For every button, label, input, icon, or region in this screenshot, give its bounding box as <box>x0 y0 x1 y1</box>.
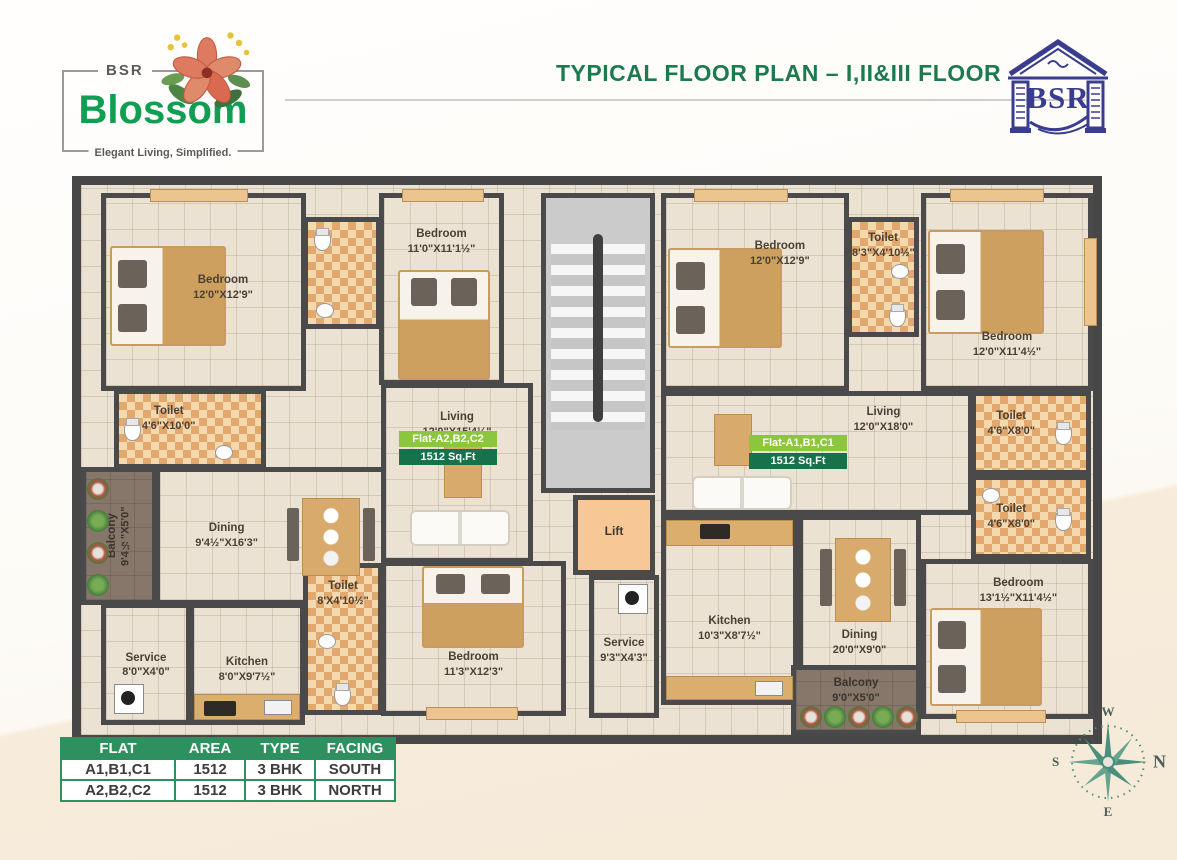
room-dims: 11'0"X11'1½" <box>384 242 499 256</box>
room-name: Dining <box>169 521 284 536</box>
room-kitchen-right: Kitchen10'3"X8'7½" <box>661 515 798 705</box>
washing-machine-icon <box>114 684 144 714</box>
dining-table-icon <box>302 498 360 576</box>
window <box>426 707 518 720</box>
teapoy-icon <box>714 414 752 466</box>
toilet-icon <box>334 683 351 706</box>
room-name: Lift <box>578 524 650 540</box>
flat-name: Flat-A2,B2,C2 <box>399 431 497 447</box>
divider-line <box>285 99 1085 101</box>
flat-area: 1512 Sq.Ft <box>749 453 847 469</box>
room-service-center: Service9'3"X4'3" <box>589 575 659 718</box>
room-name: Kitchen <box>194 655 300 670</box>
room-dims: 12'0"X12'9" <box>145 288 301 302</box>
window <box>150 189 248 202</box>
room-name: Service <box>106 651 186 666</box>
room-name: Bedroom <box>386 650 561 665</box>
toilet-icon <box>889 304 906 327</box>
plant-icon <box>87 542 109 564</box>
stair-rail <box>593 234 603 422</box>
lift: Lift <box>573 495 655 575</box>
toilet-icon <box>1055 422 1072 445</box>
plant-icon <box>87 478 109 500</box>
flower-icon <box>152 28 262 124</box>
room-dims: 9'3"X4'3" <box>594 651 654 665</box>
room-balcony-left: Balcony 9'4½"X5'0" <box>81 467 157 605</box>
bed-icon <box>398 270 490 380</box>
sink-icon <box>316 303 334 318</box>
room-dims: 10'3"X8'7½" <box>666 629 793 643</box>
room-name: Living <box>799 405 968 420</box>
bsr-emblem-text: BSR <box>1000 80 1116 116</box>
room-dims: 9'0"X5'0" <box>796 691 916 705</box>
plant-icon <box>87 510 109 532</box>
room-dims: 12'0"X11'4½" <box>926 345 1088 359</box>
header-type: TYPE <box>245 738 315 759</box>
table-header-row: FLAT AREA TYPE FACING <box>61 738 395 759</box>
room-name: Toilet <box>852 231 914 246</box>
room-name: Living <box>386 410 528 425</box>
cell-area: 1512 <box>175 780 245 801</box>
plant-icon <box>87 574 109 596</box>
window <box>402 189 484 202</box>
room-dims: 4'6"X10'0" <box>119 419 218 433</box>
room-name: Bedroom <box>955 576 1081 591</box>
window <box>950 189 1044 202</box>
cell-area: 1512 <box>175 759 245 780</box>
header-area: AREA <box>175 738 245 759</box>
flat-area: 1512 Sq.Ft <box>399 449 497 465</box>
table-row: A2,B2,C2 1512 3 BHK NORTH <box>61 780 395 801</box>
room-toilet-right-2: Toilet4'6"X8'0" <box>971 475 1091 559</box>
room-name: Toilet <box>976 409 1046 424</box>
plant-icon <box>896 706 918 728</box>
sofa-icon <box>410 510 510 546</box>
room-name: Service <box>594 636 654 651</box>
cell-flat: A1,B1,C1 <box>61 759 175 780</box>
room-bedroom-left-bottom: Bedroom11'3"X12'3" <box>381 561 566 716</box>
room-bedroom-left-mid: Bedroom11'0"X11'1½" <box>379 193 504 385</box>
plant-icon <box>848 706 870 728</box>
room-dims: 4'6"X8'0" <box>976 517 1046 531</box>
room-toilet-left-top <box>303 217 381 329</box>
room-toilet-left-2: Toilet8'X4'10½" <box>303 563 383 715</box>
room-living-left: Living12'0"X15'4½" <box>381 383 533 563</box>
room-name: Toilet <box>119 404 218 419</box>
flat-label-left: Flat-A2,B2,C2 1512 Sq.Ft <box>399 431 497 465</box>
stove-icon <box>700 524 730 539</box>
room-dims: 11'3"X12'3" <box>386 665 561 679</box>
cell-facing: NORTH <box>315 780 395 801</box>
room-toilet-right-1: Toilet4'6"X8'0" <box>971 391 1091 475</box>
header-flat: FLAT <box>61 738 175 759</box>
room-name: Kitchen <box>666 614 793 629</box>
room-name: Bedroom <box>926 330 1088 345</box>
room-dims: 4'6"X8'0" <box>976 424 1046 438</box>
room-name: Bedroom <box>384 227 499 242</box>
room-kitchen-left: Kitchen8'0"X9'7½" <box>189 603 305 725</box>
sink-icon <box>891 264 909 279</box>
room-dims: 20'0"X9'0" <box>803 643 916 657</box>
room-label: Balcony 9'4½"X5'0" <box>105 504 134 568</box>
room-bedroom-right-top: Bedroom12'0"X12'9" <box>661 193 849 391</box>
page-title: TYPICAL FLOOR PLAN – I,II&III FLOOR <box>556 60 996 87</box>
room-name: Balcony <box>796 676 916 691</box>
room-dims: 9'4½"X16'3" <box>169 536 284 550</box>
brand-tagline: Elegant Living, Simplified. <box>89 147 238 159</box>
kitchen-sink-icon <box>755 681 783 696</box>
cell-type: 3 BHK <box>245 759 315 780</box>
room-dims: 13'1½"X11'4½" <box>955 591 1081 605</box>
room-name: Bedroom <box>716 239 844 254</box>
sofa-icon <box>692 476 792 510</box>
room-name: Bedroom <box>145 273 301 288</box>
floor-plan: Bedroom12'0"X12'9" Bedroom11'0"X11'1½" T… <box>72 176 1102 744</box>
toilet-icon <box>1055 508 1072 531</box>
room-dims: 8'X4'10½" <box>308 594 378 608</box>
bed-icon <box>422 566 524 648</box>
bsr-emblem: BSR <box>1000 34 1116 144</box>
room-dims: 8'3"X4'10½" <box>852 246 914 260</box>
cell-facing: SOUTH <box>315 759 395 780</box>
sink-icon <box>982 488 1000 503</box>
room-name: Toilet <box>976 502 1046 517</box>
compass-north: N <box>1153 752 1166 773</box>
stove-icon <box>204 701 236 716</box>
window <box>1084 238 1097 326</box>
window <box>956 710 1046 723</box>
compass-south: S <box>1052 754 1059 770</box>
kitchen-sink-icon <box>264 700 292 715</box>
room-service-left: Service8'0"X4'0" <box>101 603 191 725</box>
room-dims: 8'0"X4'0" <box>106 665 186 679</box>
sink-icon <box>215 445 233 460</box>
plant-icon <box>872 706 894 728</box>
flat-label-right: Flat-A1,B1,C1 1512 Sq.Ft <box>749 435 847 469</box>
brand-top-text: BSR <box>98 62 152 79</box>
cell-type: 3 BHK <box>245 780 315 801</box>
page: BSR Blossom Elegant Living, Simplified. … <box>0 0 1177 860</box>
room-dims: 12'0"X18'0" <box>799 420 968 434</box>
compass-rose-icon <box>1052 706 1164 818</box>
bed-icon <box>928 230 1044 334</box>
room-bedroom-right-bottom: Bedroom13'1½"X11'4½" <box>921 559 1093 719</box>
room-toilet-left-1: Toilet4'6"X10'0" <box>114 389 266 469</box>
room-bedroom-right-top-2: Bedroom12'0"X11'4½" <box>921 193 1093 391</box>
table-row: A1,B1,C1 1512 3 BHK SOUTH <box>61 759 395 780</box>
dining-table-icon <box>835 538 891 622</box>
room-dims: 12'0"X12'9" <box>716 254 844 268</box>
compass-west: W <box>1102 704 1115 720</box>
sink-icon <box>318 634 336 649</box>
room-dims: 9'4½"X5'0" <box>120 506 132 565</box>
flat-name: Flat-A1,B1,C1 <box>749 435 847 451</box>
room-balcony-right: Balcony9'0"X5'0" <box>791 665 921 735</box>
toilet-icon <box>314 228 331 251</box>
washing-machine-icon <box>618 584 648 614</box>
room-name: Dining <box>803 628 916 643</box>
room-dims: 8'0"X9'7½" <box>194 670 300 684</box>
flat-info-table: FLAT AREA TYPE FACING A1,B1,C1 1512 3 BH… <box>60 737 396 802</box>
cell-flat: A2,B2,C2 <box>61 780 175 801</box>
compass-east: E <box>1104 804 1113 820</box>
header-facing: FACING <box>315 738 395 759</box>
room-toilet-right-top: Toilet8'3"X4'10½" <box>847 217 919 337</box>
window <box>694 189 788 202</box>
brand-logo: BSR Blossom Elegant Living, Simplified. <box>62 70 264 152</box>
compass: W N S E <box>1052 706 1164 818</box>
staircase <box>541 193 655 493</box>
plant-icon <box>800 706 822 728</box>
bed-icon <box>930 608 1042 706</box>
room-bedroom-left-top: Bedroom12'0"X12'9" <box>101 193 306 391</box>
plant-icon <box>824 706 846 728</box>
room-name: Toilet <box>308 579 378 594</box>
